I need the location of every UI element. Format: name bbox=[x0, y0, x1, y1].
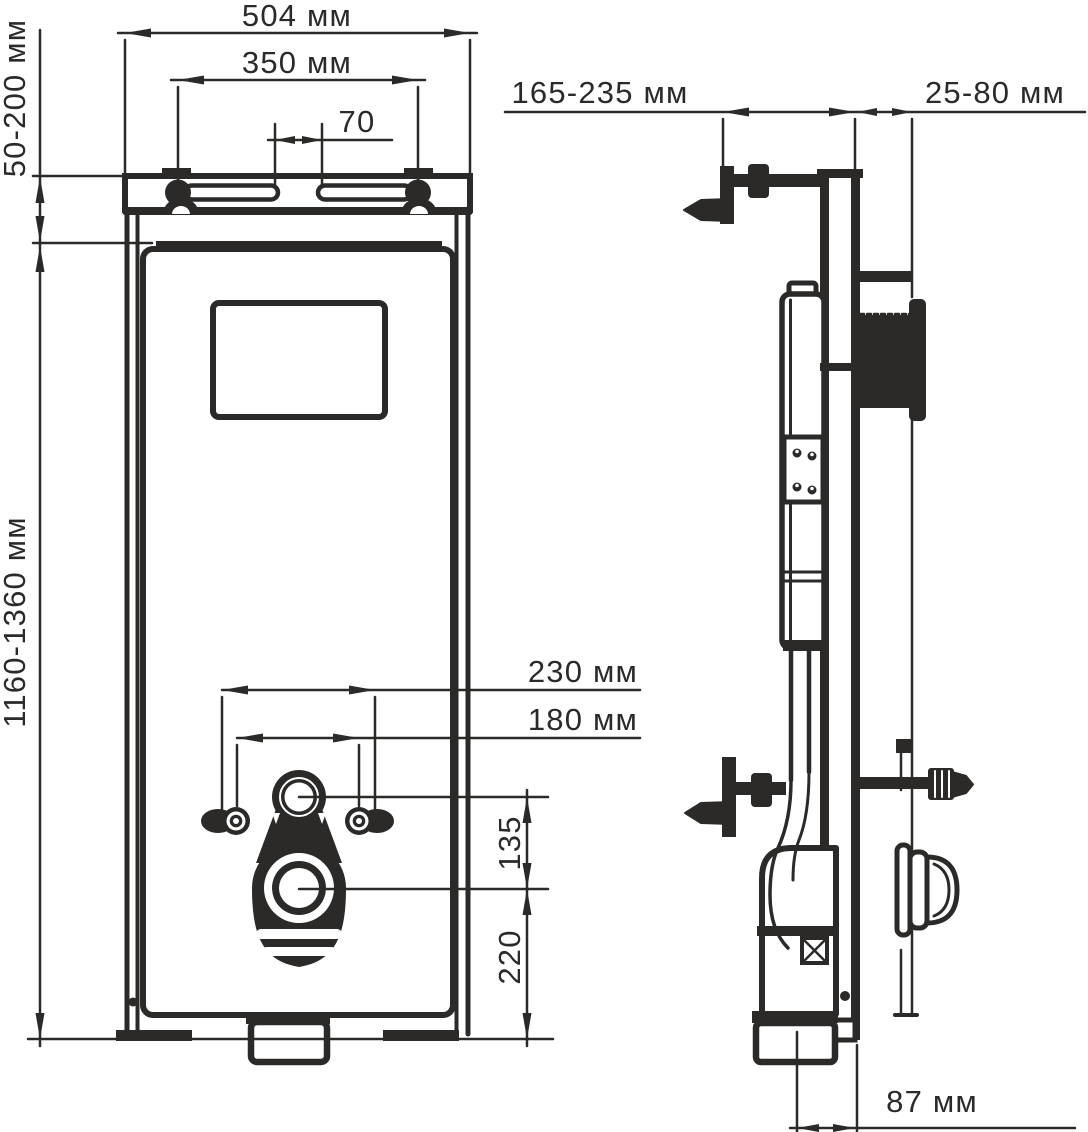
flush-access-window bbox=[213, 303, 385, 417]
flush-pipe bbox=[791, 648, 809, 780]
cistern-side bbox=[782, 283, 854, 651]
front-view bbox=[28, 168, 553, 1062]
installation-drawing: 504 мм 350 мм 70 50-200 мм 1160-1360 мм … bbox=[0, 0, 1088, 1132]
outlet-bend bbox=[752, 772, 850, 1062]
dim-label-outlet-to-floor: 220 bbox=[492, 929, 527, 984]
wall-flange-disc bbox=[897, 845, 957, 935]
anchor-bolt-top bbox=[684, 199, 731, 221]
sleeve-cap bbox=[909, 299, 926, 421]
anchor-bolt-lower bbox=[685, 802, 731, 824]
fixing-stud-right bbox=[345, 807, 394, 835]
wall-bracket-top bbox=[684, 164, 824, 224]
outlet-stub-front bbox=[246, 1013, 330, 1062]
flush-access-sleeve bbox=[858, 271, 926, 421]
water-supply-fitting bbox=[860, 768, 973, 800]
dim-label-top-adjust: 50-200 мм bbox=[0, 19, 32, 178]
top-tab-left bbox=[162, 168, 191, 177]
dim-label-frame-to-wall: 25-80 мм bbox=[925, 75, 1065, 110]
dim-label-outlet-offset: 87 мм bbox=[886, 1084, 978, 1119]
dim-label-fixing-inner: 180 мм bbox=[528, 702, 638, 737]
side-view bbox=[684, 164, 973, 1062]
dim-label-hanger-spacing: 350 мм bbox=[242, 45, 352, 80]
fill-valve-box bbox=[784, 437, 823, 502]
dim-label-bracket-to-outlet: 135 bbox=[492, 815, 527, 870]
outlet-stub-side bbox=[756, 1023, 835, 1062]
dim-label-install-height: 1160-1360 мм bbox=[0, 516, 32, 728]
dim-label-bracket-depth: 165-235 мм bbox=[511, 75, 688, 110]
technical-drawing-page: 504 мм 350 мм 70 50-200 мм 1160-1360 мм … bbox=[0, 0, 1088, 1132]
dim-label-slot-gap: 70 bbox=[339, 104, 376, 139]
fixing-stud-left bbox=[201, 807, 250, 835]
foot-screw-left bbox=[129, 998, 138, 1007]
adjust-slot-left bbox=[185, 186, 278, 200]
adjust-slot-right bbox=[318, 186, 411, 200]
dim-label-frame-width: 504 мм bbox=[242, 0, 352, 33]
wall-bracket-lower bbox=[685, 757, 786, 837]
supply-plug bbox=[952, 772, 973, 797]
dim-label-fixing-outer: 230 мм bbox=[528, 654, 638, 689]
